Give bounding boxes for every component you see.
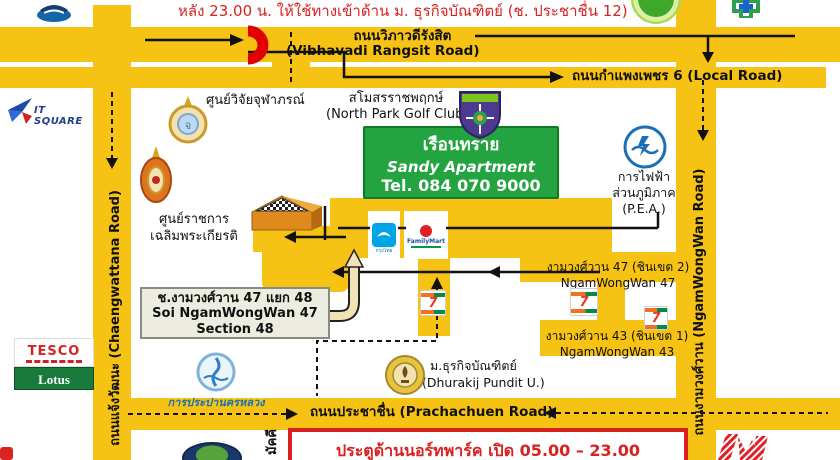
soi-callout-line2: Soi NgamWongWan 47 (142, 306, 328, 321)
gate-hours-text: ประตูด้านนอร์ทพาร์ค เปิด 05.00 – 23.00 (292, 439, 684, 460)
pea-logo (622, 124, 668, 170)
health-cross-logo (729, 0, 763, 18)
northpark-badge (458, 88, 502, 140)
label-pea-1: การไฟฟ้า (606, 170, 682, 184)
seven-stripe (571, 309, 597, 313)
label-local-road: ถนนกำแพงเพชร 6 (Local Road) (572, 69, 782, 85)
gov-center-crest (136, 146, 176, 206)
lotus-label: Lotus (38, 372, 70, 387)
label-vibhavadi-eng: (Vibhavadi Rangsit Road) (286, 44, 476, 60)
label-pea-2: ส่วนภูมิภาค (606, 186, 682, 200)
corner-logo-fragment (0, 447, 13, 460)
the-mall-logo (718, 434, 768, 460)
seven-numeral: 7 (428, 297, 437, 310)
gate-hours-box: ประตูด้านนอร์ทพาร์ค เปิด 05.00 – 23.00 (288, 428, 688, 460)
label-soi47-eng: NgamWongWan 47 (544, 277, 692, 291)
seven-numeral: 7 (579, 296, 588, 309)
callout-curve-arrow (326, 250, 363, 316)
itsquare-label: IT SQUARE (34, 105, 98, 127)
label-mwa: การประปานครหลวง (164, 397, 268, 410)
label-prachachuen: ถนนประชาชื่น (Prachachuen Road) (310, 405, 542, 421)
tesco-label: TESCO (28, 344, 81, 359)
label-northpark-thai: สโมสรราชพฤกษ์ (330, 92, 462, 107)
seven-stripe (421, 310, 445, 314)
seven-numeral: 7 (651, 312, 660, 325)
chulabhorn-crest: จ (164, 96, 212, 146)
label-soi43-eng: NgamWongWan 43 (542, 346, 692, 360)
label-dhurakij-eng: (Dhurakij Pundit U.) (422, 376, 545, 390)
harbor-dept-logo (34, 0, 74, 22)
seven-stripe (645, 325, 667, 329)
label-soi47-thai: งามวงศ์วาน 47 (ชินเขต 2) (544, 261, 692, 275)
familymart-label: FamilyMart (407, 238, 445, 245)
itsquare-logo: IT SQUARE (6, 96, 98, 126)
soi-callout-box: ช.งามวงศ์วาน 47 แยก 48 Soi NgamWongWan 4… (140, 287, 330, 339)
sign-tel: Tel. 084 070 9000 (365, 176, 557, 195)
familymart-logo: FamilyMart (406, 216, 446, 256)
soi-callout-line1: ช.งามวงศ์วาน 47 แยก 48 (142, 291, 328, 306)
label-northpark-eng: (North Park Golf Club) (326, 108, 466, 123)
tesco-lotus-logo: TESCO Lotus (14, 338, 94, 384)
label-samakkhi-partial: มัคคี (261, 421, 282, 460)
seven-eleven-icon: 7 (570, 288, 598, 316)
krungthai-logo: กรุงไทย (370, 222, 398, 256)
apartment-building-icon (252, 196, 322, 230)
direction-map: หลัง 23.00 น. ให้ใช้ทางเข้าด้าน ม. ธุรกิ… (0, 0, 840, 460)
seven-eleven-icon: 7 (644, 306, 668, 330)
seven-eleven-icon: 7 (420, 290, 446, 316)
label-pea-3: (P.E.A.) (606, 202, 682, 216)
krungthai-label: กรุงไทย (376, 247, 393, 255)
u-turn-icon (248, 31, 263, 59)
label-chulabhorn: ศูนย์วิจัยจุฬาภรณ์ (206, 94, 305, 109)
label-soi43-thai: งามวงศ์วาน 43 (ชินเขต 1) (542, 330, 692, 344)
label-dhurakij-thai: ม.ธุรกิจบัณฑิตย์ (430, 359, 517, 373)
dhurakij-logo (384, 354, 426, 396)
mwa-logo (196, 348, 236, 396)
svg-text:จ: จ (185, 119, 191, 132)
label-gov-center-2: เฉลิมพระเกียรติ (134, 230, 254, 245)
label-ngamwongwan: ถนนงามวงศ์วาน (NgamWongWan Road) (688, 152, 709, 452)
sign-name-eng: Sandy Apartment (365, 158, 557, 176)
after-hours-note: หลัง 23.00 น. ให้ใช้ทางเข้าด้าน ม. ธุรกิ… (178, 3, 564, 20)
soi-callout-line3: Section 48 (142, 322, 328, 337)
label-gov-center-1: ศูนย์ราชการ (134, 213, 254, 228)
label-chaengwattana: ถนนแจ้งวัฒนะ (Chaengwattana Road) (104, 178, 125, 458)
